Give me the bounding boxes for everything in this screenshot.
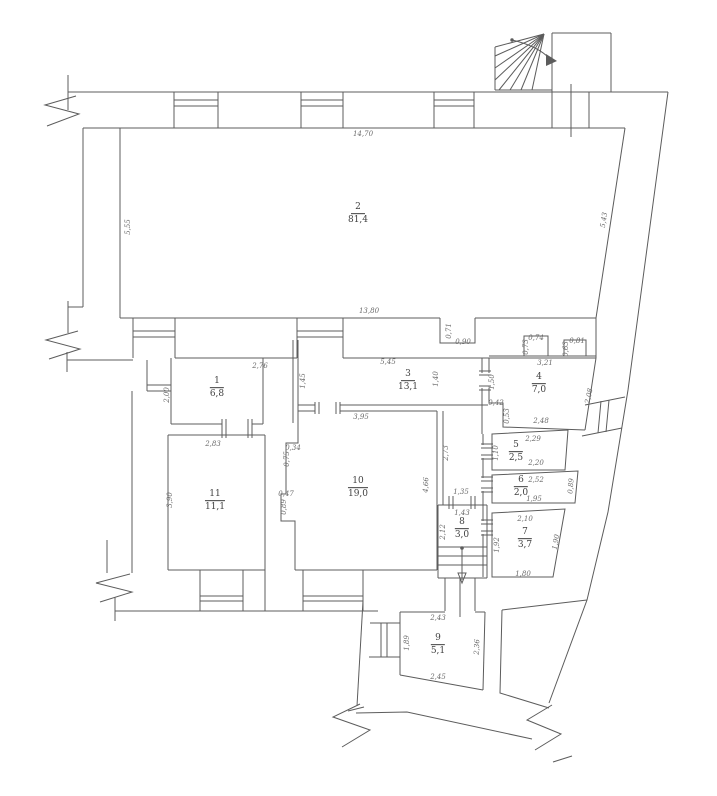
room-number: 9 — [431, 633, 445, 645]
dimension-label: 1,50 — [488, 374, 496, 390]
dimension-label: 2,00 — [163, 387, 171, 403]
room-number: 8 — [455, 517, 469, 529]
dimension-label: 1,43 — [454, 509, 470, 517]
dimension-label: 2,12 — [439, 524, 447, 540]
dimension-label: 1,80 — [515, 570, 531, 578]
room-area: 81,4 — [348, 215, 368, 226]
room-number: 6 — [514, 475, 528, 487]
dimension-label: 0,89 — [280, 499, 288, 515]
dimension-label: 2,20 — [528, 459, 544, 467]
floor-plan-drawing — [0, 0, 717, 796]
room-label-8: 83,0 — [455, 517, 469, 541]
room-number: 3 — [401, 369, 415, 381]
dimension-label: 1,92 — [493, 537, 501, 553]
dimension-label: 5,45 — [380, 358, 396, 366]
room-label-7: 73,7 — [518, 527, 532, 551]
dimension-label: 1,95 — [526, 495, 542, 503]
dimension-label: 2,48 — [533, 417, 549, 425]
dimension-label: 2,29 — [525, 435, 541, 443]
room-area: 11,1 — [205, 502, 225, 513]
dimension-label: 3,21 — [537, 359, 553, 367]
room-area: 6,8 — [210, 389, 224, 400]
dimension-label: 3,90 — [166, 492, 174, 508]
room-label-4: 47,0 — [532, 372, 546, 396]
room-label-1: 16,8 — [210, 376, 224, 400]
dimension-label: 0,81 — [569, 337, 585, 345]
room-area: 2,5 — [509, 453, 523, 464]
dimension-label: 13,80 — [359, 307, 379, 315]
room-label-5: 52,5 — [509, 440, 523, 464]
dimension-label: 4,66 — [422, 477, 431, 493]
dimension-label: 0,75 — [283, 451, 291, 467]
room-number: 1 — [210, 376, 224, 388]
room-number: 2 — [351, 202, 365, 214]
dimension-label: 0,89 — [566, 478, 575, 494]
room-area: 3,0 — [455, 530, 469, 541]
room-area: 13,1 — [398, 382, 418, 393]
dimension-label: 2,43 — [430, 614, 446, 622]
room-area: 3,7 — [518, 540, 532, 551]
room-number: 10 — [348, 476, 367, 488]
dimension-label: 1,89 — [403, 635, 411, 651]
dimension-label: 0,47 — [278, 490, 294, 498]
dimension-label: 2,10 — [517, 515, 533, 523]
dimension-label: 1,10 — [492, 445, 500, 461]
room-area: 5,1 — [431, 646, 445, 657]
dimension-label: 0,63 — [562, 341, 570, 357]
room-label-9: 95,1 — [431, 633, 445, 657]
dimension-label: 1,40 — [432, 371, 440, 387]
dimension-label: 2,45 — [430, 673, 446, 681]
room-number: 7 — [518, 527, 532, 539]
room-area: 19,0 — [348, 489, 368, 500]
room-label-2: 281,4 — [348, 202, 368, 226]
dimension-label: 0,42 — [488, 399, 504, 407]
room-area: 7,0 — [532, 385, 546, 396]
room-label-11: 1111,1 — [205, 489, 225, 513]
spiral-stair-icon — [495, 33, 611, 137]
dimension-label: 2,76 — [252, 362, 268, 370]
room-number: 4 — [532, 372, 546, 384]
dimension-label: 0,73 — [522, 339, 530, 355]
dimension-label: 1,45 — [299, 373, 307, 389]
dimension-label: 0,90 — [455, 338, 471, 346]
room-label-10: 1019,0 — [348, 476, 368, 500]
room-number: 5 — [509, 440, 523, 452]
dimension-label: 2,52 — [528, 476, 544, 484]
dimension-label: 5,55 — [124, 219, 132, 235]
dimension-label: 0,74 — [528, 334, 544, 342]
dimension-label: 1,35 — [453, 488, 469, 496]
room-label-3: 313,1 — [398, 369, 418, 393]
dimension-label: 14,70 — [353, 130, 373, 138]
dimension-label: 0,71 — [445, 323, 453, 339]
floor-plan-canvas: 281,416,8313,147,052,562,073,783,095,110… — [0, 0, 717, 796]
dimension-label: 2,36 — [473, 639, 482, 655]
dimension-label: 3,95 — [353, 413, 369, 421]
room-number: 11 — [205, 489, 224, 501]
dimension-label: 2,73 — [442, 445, 450, 461]
staircase-icon — [438, 546, 487, 617]
dimension-label: 0,53 — [503, 408, 511, 424]
dimension-label: 2,83 — [205, 440, 221, 448]
interior-walls — [120, 318, 596, 690]
